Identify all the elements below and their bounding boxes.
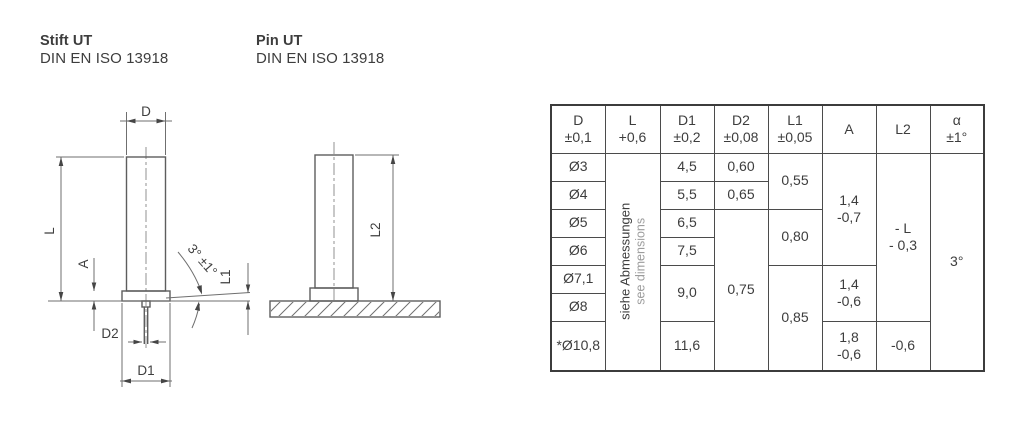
cell-alpha: 3° — [930, 153, 984, 371]
arrowhead — [59, 157, 64, 166]
taper-reference-line — [166, 293, 250, 299]
product-title-en: Pin UT — [256, 33, 384, 50]
col-header-d: D±0,1 — [551, 105, 605, 153]
dim-label-d1: D1 — [137, 363, 154, 378]
dim-label-a: A — [76, 259, 91, 268]
cell-d1: 9,0 — [660, 265, 714, 321]
cell-l2: -0,6 — [876, 321, 930, 371]
arrowhead — [195, 301, 202, 311]
cell-d: Ø5 — [551, 209, 605, 237]
dim-label-d: D — [141, 104, 151, 119]
arrowhead — [197, 285, 205, 295]
dim-label-angle: 3° ±1° — [185, 241, 221, 279]
cell-d1: 4,5 — [660, 153, 714, 181]
cell-a: 1,4 -0,7 — [822, 153, 876, 265]
arrowhead — [92, 301, 97, 310]
cell-d2: 0,60 — [714, 153, 768, 181]
arrowhead — [127, 119, 136, 124]
dim-l1: L1 — [218, 263, 250, 335]
dim-d2: D2 — [101, 326, 166, 344]
cell-l1: 0,55 — [768, 153, 822, 209]
cell-d1: 6,5 — [660, 209, 714, 237]
front-view-drawing: D L A D2 — [38, 95, 256, 395]
cell-d1: 7,5 — [660, 237, 714, 265]
dimension-table: D±0,1 L+0,6 D1±0,2 D2±0,08 L1±0,05 A L2 … — [550, 104, 985, 372]
cell-a: 1,4 -0,6 — [822, 265, 876, 321]
cell-d1: 11,6 — [660, 321, 714, 371]
col-header-d1: D1±0,2 — [660, 105, 714, 153]
datasheet-page: Stift UT DIN EN ISO 13918 Pin UT DIN EN … — [0, 0, 1024, 438]
col-header-l: L+0,6 — [605, 105, 660, 153]
plate-hatching — [264, 300, 446, 318]
arrowhead — [122, 379, 131, 384]
cell-l-note: siehe Abmessungen see dimensions — [605, 153, 660, 371]
dim-l2: L2 — [355, 155, 399, 301]
dim-a: A — [76, 258, 96, 331]
dim-angle: 3° ±1° — [178, 241, 220, 328]
note-german: siehe Abmessungen — [617, 203, 633, 320]
cell-d: Ø4 — [551, 181, 605, 209]
base-plate-outline — [270, 301, 440, 317]
col-header-a: A — [822, 105, 876, 153]
cell-d: Ø7,1 — [551, 265, 605, 293]
cell-d: Ø8 — [551, 293, 605, 321]
standard-ref-de: DIN EN ISO 13918 — [40, 50, 168, 69]
cell-d: Ø3 — [551, 153, 605, 181]
arrowhead — [59, 292, 64, 301]
cell-l1: 0,80 — [768, 209, 822, 265]
dim-label-l1: L1 — [218, 269, 233, 284]
cell-d2: 0,65 — [714, 181, 768, 209]
arrowhead — [150, 340, 159, 344]
col-header-l1: L1±0,05 — [768, 105, 822, 153]
table-row: Ø3 siehe Abmessungen see dimensions 4,5 … — [551, 153, 984, 181]
cell-l1: 0,85 — [768, 265, 822, 371]
col-header-d2: D2±0,08 — [714, 105, 768, 153]
arrowhead — [246, 285, 250, 293]
arrowhead — [391, 155, 396, 164]
product-title-de: Stift UT — [40, 33, 168, 50]
arrowhead — [391, 292, 396, 301]
arrowhead — [161, 379, 170, 384]
cell-d2: 0,75 — [714, 209, 768, 371]
standard-ref-en: DIN EN ISO 13918 — [256, 50, 384, 69]
welded-view-drawing: L2 — [258, 128, 446, 326]
table-header-row: D±0,1 L+0,6 D1±0,2 D2±0,08 L1±0,05 A L2 … — [551, 105, 984, 153]
col-header-alpha: α±1° — [930, 105, 984, 153]
dim-label-l2: L2 — [368, 222, 383, 237]
arrowhead — [92, 283, 97, 292]
title-block-en: Pin UT DIN EN ISO 13918 — [256, 33, 384, 68]
dim-label-d2: D2 — [101, 326, 118, 341]
cell-d: *Ø10,8 — [551, 321, 605, 371]
dim-label-l: L — [42, 227, 57, 235]
arrowhead — [157, 119, 166, 124]
arrowhead — [134, 340, 143, 344]
dim-l: L — [42, 157, 124, 301]
title-block-de: Stift UT DIN EN ISO 13918 — [40, 33, 168, 68]
col-header-l2: L2 — [876, 105, 930, 153]
note-english: see dimensions — [633, 203, 648, 320]
arrowhead — [246, 301, 250, 310]
cell-a: 1,8 -0,6 — [822, 321, 876, 371]
cell-d: Ø6 — [551, 237, 605, 265]
cell-l2: - L - 0,3 — [876, 153, 930, 321]
cell-d1: 5,5 — [660, 181, 714, 209]
